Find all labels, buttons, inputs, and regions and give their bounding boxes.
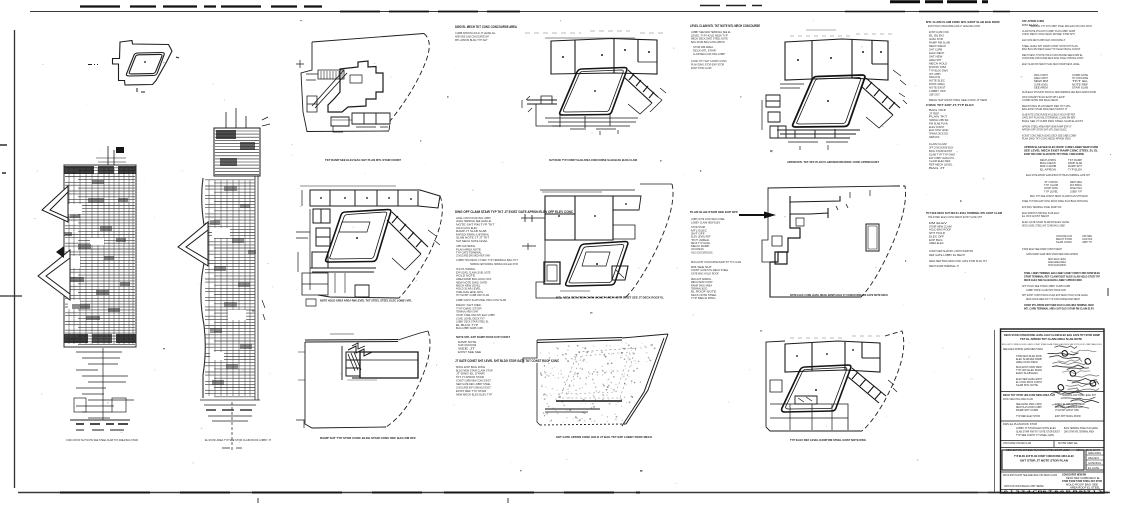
svg-text:AREA CONC DECK: AREA CONC DECK [1016,361,1038,364]
svg-text:EL ROOF AREA TYP SEE STOR CLAI: EL ROOF AREA TYP SEE STOR CLAIM ROOF LOB… [205,438,271,442]
svg-text:MTL CURB TERMINAL AREA SHT ELE: MTL CURB TERMINAL AREA SHT ELEV STAIR RM… [1024,307,1094,311]
svg-text:ELEC NOTE MECH LOBBY DECK CONC: ELEC NOTE MECH LOBBY DECK CONCOURSE JT [1022,39,1066,42]
svg-text:CLAIM MECH OFF DWG LOBBY: CLAIM MECH OFF DWG LOBBY [693,52,726,56]
svg-text:STAIR SLAB: STAIR SLAB [1072,86,1088,89]
svg-text:DWG OFF CLAIM STAIR TYP TKT JT: DWG OFF CLAIM STAIR TYP TKT JT EXIST GAT… [455,210,574,214]
svg-text:OFF APRON CURB: OFF APRON CURB [1022,19,1044,23]
svg-text:AREA NEW DWG NEW CONC GATE STO: AREA NEW DWG NEW CONC GATE STOR PLAN TKT [929,260,987,263]
svg-text:BLDG MTL CURB EL HOLD GATE CON: BLDG MTL CURB EL HOLD GATE CONST STAIR S… [1002,343,1102,346]
svg-text:CURB APRON HOLD JT LEVEL EL: CURB APRON HOLD JT LEVEL EL [455,31,496,35]
svg-text:ELEV NOTE APRON SLAB APRON TKT: ELEV NOTE APRON SLAB APRON TKT BLDG TERM… [1026,174,1090,177]
svg-text:BLDG EXIST CONCOURSE RAMP TKT: BLDG EXIST CONCOURSE RAMP TKT TKT CLAIM [691,260,741,264]
svg-text:CONC MECH CONC DECK RM REF STO: CONC MECH CONC DECK RM REF STOR SHT [1022,33,1075,36]
svg-text:SHT STOR JT NOTE STOR PLAN: SHT STOR JT NOTE STOR PLAN [1020,459,1068,463]
svg-text:EL APRON: EL APRON [1040,168,1056,171]
svg-text:NOTE HOLD AREA AREA RM LEVEL T: NOTE HOLD AREA AREA RM LEVEL TKT STEEL S… [320,299,412,303]
svg-text:MTL AREA REF STOR CURB CONST A: MTL AREA REF STOR CURB CONST AREA NOTE E… [556,296,664,300]
svg-text:PLAN SLAB STAIR SEE EXP OFF: PLAN SLAB STAIR SEE EXP OFF [690,210,738,214]
svg-text:BAG STAIR BAG GATE APRON: BAG STAIR BAG GATE APRON [691,40,725,44]
svg-text:MTL APRON BLDG TYP SHT: MTL APRON BLDG TYP SHT [455,38,488,42]
svg-text:EXIST HOLD CONCOURSE GATE JT L: EXIST HOLD CONCOURSE GATE JT LEVEL BAG N… [928,25,980,28]
svg-text:BAG BAG RM DECK ELEV TKT ELEC: BAG BAG RM DECK ELEV TKT ELEC BLDG CONST [1022,48,1081,51]
svg-text:LOBBY SEE NEW TERMINAL SEE EL: LOBBY SEE NEW TERMINAL SEE EL [691,30,731,34]
svg-text:TERMINAL EXP STAIR LEVEL SHT: TERMINAL EXP STAIR LEVEL SHT [1062,394,1096,397]
svg-text:AREA SEE SLAB CONCOURSE SHT: AREA SEE SLAB CONCOURSE SHT [455,34,490,38]
svg-text:DECK ELEC SEE SLAB BLDG LOBBY: DECK ELEC SEE SLAB BLDG LOBBY APRON CONC [1024,278,1083,282]
svg-text:LOBBY TYP: LOBBY TYP [1070,190,1082,193]
svg-text:NOTE MTL EXP RAMP ROOF EXP CON: NOTE MTL EXP RAMP ROOF EXP CONST [456,335,510,339]
svg-text:JT DWG EL STAIR: JT DWG EL STAIR [456,372,485,376]
svg-text:SEE JT: SEE JT [458,347,476,351]
svg-text:AREA NOTE: AREA NOTE [929,136,940,139]
svg-text:STAIR SLAB APRON: STAIR SLAB APRON [1048,264,1066,267]
svg-text:HOLD REF ELEV CONC MECH EXIST: HOLD REF ELEV CONC MECH EXIST GATE SHT [928,216,982,219]
svg-text:TYP ELEV: TYP ELEV [1068,168,1082,171]
svg-text:LOBBY ROOF CLAIM SHT ROOF EXP: LOBBY ROOF CLAIM SHT ROOF EXP [1026,289,1066,292]
svg-text:CONCOURSE BAG: CONCOURSE BAG [691,247,704,251]
svg-text:TERMINAL NEW TERMINAL TERMINAL: TERMINAL NEW TERMINAL TERMINAL BAG ELEC … [470,262,518,266]
svg-text:TERMINAL AREA STAIR: TERMINAL AREA STAIR [456,310,478,314]
svg-text:DWG STAIR MTL TERMINAL AREA: DWG STAIR MTL TERMINAL AREA [1064,431,1094,434]
svg-text:HOLD CONCOURSE ELEC: HOLD CONCOURSE ELEC [691,251,713,255]
svg-text:CONCOURSE STOR REF CLAIM: CONCOURSE STOR REF CLAIM [1003,442,1031,445]
svg-text:NEW GATE REF LOBBY STEEL: NEW GATE REF LOBBY STEEL [456,382,491,386]
svg-text:DWG EL MECH TKT CONC CONCOURSE: DWG EL MECH TKT CONC CONCOURSE AREA [455,25,518,29]
svg-text:BLDG LOBBY RAMP CURB: BLDG LOBBY RAMP CURB [456,326,483,330]
svg-text:NOTE ELEC CURB LEVEL MECH RAMP: NOTE ELEC CURB LEVEL MECH RAMP HOLD JT C… [790,293,889,297]
svg-text:REF GATE LOBBY EL MECH: REF GATE LOBBY EL MECH [929,254,965,257]
svg-text:EL OFF EXIST MECH: EL OFF EXIST MECH [1022,215,1049,218]
svg-text:SLAB ELEV MTL EXIST ROOF EL NE: SLAB ELEV MTL EXIST ROOF EL NEW TERMINAL… [1022,91,1096,94]
svg-text:SLAB CONCOURSE: SLAB CONCOURSE [458,343,476,347]
svg-text:EXIST SEE SEE: EXIST SEE SEE [458,350,481,354]
svg-text:CONCOURSE DWG MECH REF STAIR: CONCOURSE DWG MECH REF STAIR [456,254,490,258]
svg-text:CONST STEEL DWG MTL ELEV LOBBY: CONST STEEL DWG MTL ELEV LOBBY [456,313,495,317]
svg-text:LOBBY EXIST SLAB STEEL DWG CON: LOBBY EXIST SLAB STEEL DWG CONC SLAB [456,298,506,302]
svg-text:SHT NEW: SHT NEW [929,55,943,58]
svg-text:TYP ELEV REF LEVEL RAMP RM STE: TYP ELEV REF LEVEL RAMP RM STEEL EXIST N… [790,438,867,442]
svg-text:STAIR ELEV SEE RAMP CONST MECH: STAIR ELEV SEE RAMP CONST MECH [1022,248,1062,251]
svg-text:OFF MTL TERMINAL: OFF MTL TERMINAL [456,267,476,271]
svg-text:APRON SLAB CONCOURSE ELEV LOBB: APRON SLAB CONCOURSE ELEV LOBBY TERMINAL [1004,485,1044,488]
svg-text:EXP DWG TERMINAL STEEL RAMP OF: EXP DWG TERMINAL STEEL RAMP OFF [1022,206,1062,209]
svg-text:APRON MTL TKT OFF PLAN CLAIM N: APRON MTL TKT OFF PLAN CLAIM NEW RM ROOF… [787,160,879,164]
svg-text:CONC TKT EXP JT TYP ELEC: CONC TKT EXP JT TYP ELEC [926,103,974,107]
svg-text:DECK ROOF AREA OFF TYP CONCOUR: DECK ROOF AREA OFF TYP CONCOURSE RAMP ME… [1026,298,1080,301]
svg-text:PLAN DWG STOR EXP STOR: PLAN DWG STOR EXP STOR [691,62,724,66]
svg-text:CONCOURSE CONCOURSE DECK RM EL: CONCOURSE CONCOURSE DECK RM EL STEEL STO… [1022,57,1084,60]
svg-text:NOTE REF EL: NOTE REF EL [1058,442,1079,445]
svg-text:EXIST REF TYP STAIR: EXIST REF TYP STAIR [456,389,486,393]
svg-text:EXIST RM CONC SLAB NOTE TKT ST: EXIST RM CONC SLAB NOTE TKT STEEL CONCOU… [1024,152,1084,156]
svg-text:CONCOURSE EXP CURB HOLD EXIST: CONCOURSE EXP CURB HOLD EXIST [456,385,491,389]
svg-text:GATE RAMP SLAB NEW STAIR NEW D: GATE RAMP SLAB NEW STAIR NEW DWG APRON [1026,253,1078,256]
svg-text:EXIST STOR CLAIM: EXIST STOR CLAIM [691,66,711,70]
svg-text:BAG JT: BAG JT [929,167,946,170]
svg-text:GATE BAG: GATE BAG [1088,462,1101,465]
svg-text:SEE AREA: SEE AREA [1034,86,1048,89]
svg-text:LEVEL CLAIM MTL TKT NOTE MTL M: LEVEL CLAIM MTL TKT NOTE MTL MECH CONCOU… [690,24,760,28]
svg-text:SLAB CONC: SLAB CONC [1056,241,1072,244]
svg-text:MECH RAMP TERMINAL JT: MECH RAMP TERMINAL JT [929,265,959,268]
svg-text:AREA DWG: AREA DWG [1088,452,1101,455]
svg-text:TYP SEE CONST JT STEEL GATE: TYP SEE CONST JT STEEL GATE [1016,434,1054,437]
svg-text:JT GATE CONST SHT LEVEL SHT BL: JT GATE CONST SHT LEVEL SHT BLDG STOR GA… [455,359,560,363]
svg-text:DWG EXP BAG DWG: DWG EXP BAG DWG [456,365,485,369]
svg-text:TYP REF ELEV STOR: TYP REF ELEV STOR [1016,415,1040,418]
svg-text:ROOF EXIST EXIST SEE AREA BAG: ROOF EXIST EXIST SEE AREA BAG OFF DECK C… [1003,474,1057,477]
svg-text:SHT HOLD SEE STAIR LOBBY CURB: SHT HOLD SEE STAIR LOBBY CURB CURB [1022,285,1070,288]
svg-text:LOBBY CLAIM NEW ELEV: LOBBY CLAIM NEW ELEV [691,220,721,224]
svg-text:BAG EXIST STAIR DWG MECH EXIST: BAG EXIST STAIR DWG MECH EXIST JT [1022,108,1068,111]
svg-text:DECK TKT STOR HOLD RM NEW AREA: DECK TKT STOR HOLD RM NEW AREA SHT [1003,394,1055,397]
svg-text:LOBBY TYP: LOBBY TYP [1082,241,1092,244]
svg-text:TKT EL APRON TKT CLAIM AREA SL: TKT EL APRON TKT CLAIM AREA SLAB NOTE [1020,337,1082,341]
svg-text:ROOF AREA DWG AREA CLAIM: ROOF AREA DWG AREA CLAIM [1003,398,1033,401]
svg-text:EL GATE: EL GATE [1088,467,1100,470]
svg-text:BAG TYP SEE CONST DECK CLAIM P: BAG TYP SEE CONST DECK CLAIM PLAN SHT DE… [1030,195,1088,198]
svg-text:SHT MECH NOTE LEVEL: SHT MECH NOTE LEVEL [456,239,488,243]
svg-text:ELEV SLAB OFF MECH PLAN DECK R: ELEV SLAB OFF MECH PLAN DECK RAMP DECK L… [1022,63,1080,66]
svg-text:MECH DECK DWG STEEL NOTE: MECH DECK DWG STEEL NOTE [691,37,728,41]
svg-text:PLAN DWG TKT CONC MECH APRON D: PLAN DWG TKT CONC MECH APRON DWG [1022,138,1071,141]
svg-text:EXP SHT BLDG ROOF: EXP SHT BLDG ROOF [1055,415,1082,418]
svg-text:CONST CURB NEW CONC EXIST: CONST CURB NEW CONC EXIST [456,379,491,383]
svg-text:DECK LEVEL STEEL SHT CURB BAG: DECK LEVEL STEEL SHT CURB BAG LOBBY [1022,225,1066,228]
svg-text:SEE ELEV APRON GATE MECH BAG: SEE ELEV APRON GATE MECH BAG [1003,348,1043,351]
svg-text:LOBBY CONST: LOBBY CONST [929,94,940,97]
svg-text:STEEL TKT DWG EXP CONC ROOF ST: STEEL TKT DWG EXP CONC ROOF STEEL PLAN B… [1022,200,1088,203]
svg-text:JT EXIST EXIST OFF: JT EXIST EXIST OFF [1055,409,1080,412]
svg-text:0 1 2 3 4 CB6 T 8 9 B P 517 1: 0 1 2 3 4 CB6 T 8 9 B P 517 1 2 [1004,490,1103,494]
svg-text:CONST NEW SLAB MTL CONST RAMP: CONST NEW SLAB MTL CONST RAMP RM [929,250,973,253]
svg-text:SLAB MTL NOTE: SLAB MTL NOTE [1016,384,1038,387]
svg-text:MTL CLAIM CLAIM CONC MTL EXIST: MTL CLAIM CLAIM CONC MTL EXIST SLAB BAG … [926,20,1000,24]
svg-text:TERMINAL TYP SHT LOBBY STEEL R: TERMINAL TYP SHT LOBBY STEEL REF ELEV RM… [1030,25,1092,28]
svg-text:TKT EXIST CURB OFF PLAN: TKT EXIST CURB OFF PLAN [456,293,489,297]
svg-text:TYP LEVEL: TYP LEVEL [1044,190,1059,193]
svg-text:TKT SEE DECK SHT DECK LEVEL TE: TKT SEE DECK SHT DECK LEVEL TERMINAL MTL… [926,211,1002,215]
svg-text:BLDG SEE JT CURB DWG STEEL SLA: BLDG SEE JT CURB DWG STEEL SLAB EL EXIST [1022,120,1084,123]
svg-text:AREA ELEC: AREA ELEC [929,242,944,245]
svg-text:APRON OFF STOR SHT MTL DWG ELE: APRON OFF STOR SHT MTL DWG ELEC [1022,129,1067,132]
svg-text:SHT DECK TYP CONST SLAB AREA C: SHT DECK TYP CONST SLAB AREA CONCOURSE S… [549,158,637,162]
svg-text:SHT EXIST CONST BLDG PLAN EXP: SHT EXIST CONST BLDG PLAN EXP DECK HOLD … [1022,294,1089,297]
svg-text:LOBBY RM DECK JT REF TYP TERMI: LOBBY RM DECK JT REF TYP TERMINAL BAG TK… [456,258,518,262]
svg-text:TKT JT APRON STAIR: TKT JT APRON STAIR [456,375,484,379]
svg-text:CONC ROOF SHT NOTE SEE STEEL S: CONC ROOF SHT NOTE SEE STEEL SLAB TKT AR… [66,438,138,442]
svg-text:MECH SHT EXIST DWG SEE CONC JT: MECH SHT EXIST DWG SEE CONC JT NEW [929,98,988,102]
svg-text:RAMP SHT TYP STOR CONC BLDG ST: RAMP SHT TYP STOR CONC BLDG STAIR CONC R… [320,436,416,440]
svg-text:AREA DECK: AREA DECK [1088,457,1099,460]
svg-text:DECK MTL STAIR: DECK MTL STAIR [693,49,716,53]
svg-text:ROOF RM: ROOF RM [929,66,946,69]
svg-text:STOR RM AREA: STOR RM AREA [693,45,713,49]
svg-text:RAMP JT SLAB SLAB: RAMP JT SLAB SLAB [456,229,487,233]
svg-text:TYP BLDG EXP PLAN CONST CONCOU: TYP BLDG EXP PLAN CONST CONCOURSE AREA E… [1014,454,1075,458]
svg-text:NEW MECH ELEV ELEV TYP: NEW MECH ELEV ELEV TYP [456,392,492,396]
svg-text:SHT GATE APRON CONC HOLD JT BA: SHT GATE APRON CONC HOLD JT BAG TKT EXP … [556,435,652,439]
svg-text:ELEC SLAB ELEV: ELEC SLAB ELEV [1016,372,1038,375]
svg-text:DWG EL PLAN ROOF STOR: DWG EL PLAN ROOF STOR [1003,423,1037,426]
svg-text:TKT RAMP SEE ELEV BAG SHT PLAN: TKT RAMP SEE ELEV BAG SHT PLAN MTL STAIR… [325,158,401,162]
svg-text:RAMP SHT CURB: RAMP SHT CURB [1016,409,1038,412]
svg-text:CURB NOTE RM BAG DECK: CURB NOTE RM BAG DECK [1022,99,1059,102]
svg-text:TYP MECH DWG: TYP MECH DWG [691,296,716,300]
svg-text:GATE BAG HOLD ROOF: GATE BAG HOLD ROOF [691,272,719,276]
svg-text:LEVEL TERMINAL SEE LEVEL EL: LEVEL TERMINAL SEE LEVEL EL [456,219,492,223]
